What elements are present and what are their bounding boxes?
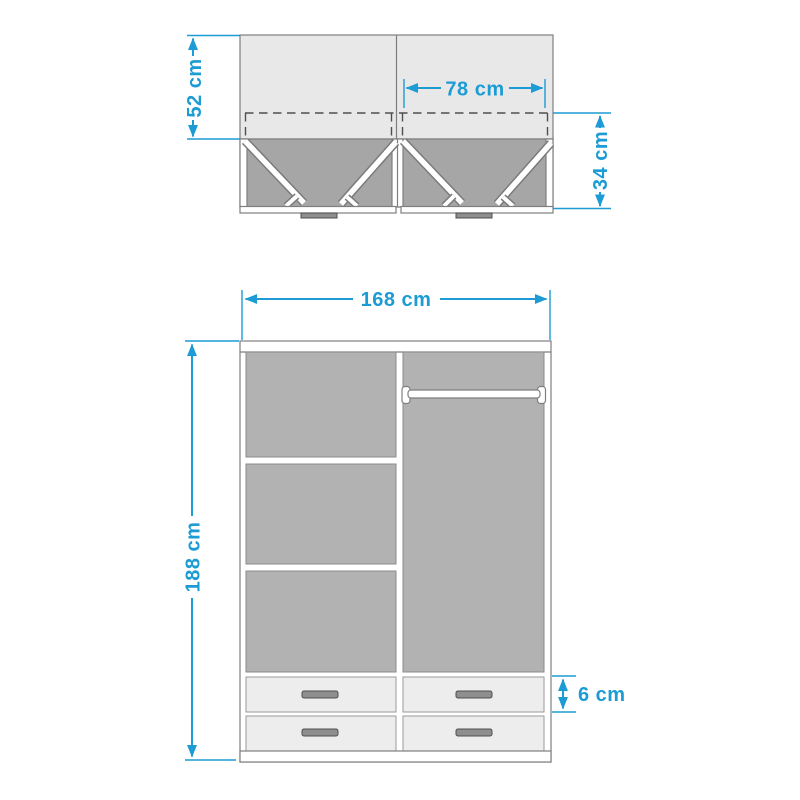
dim-height-188: 188 cm	[183, 341, 240, 760]
hanging-rail-bar	[408, 390, 540, 398]
inner-width-dimension-label: 78 cm	[445, 79, 504, 101]
left-section-panel-1	[246, 352, 396, 457]
width-dimension-label: 168 cm	[361, 289, 432, 311]
base-glide-left	[301, 213, 337, 218]
depth-dimension-label: 52 cm	[184, 58, 206, 117]
door-clearance-dimension-label: 34 cm	[590, 131, 612, 190]
plinth-strip	[240, 751, 551, 762]
top-view: 52 cm 78 cm 34 cm	[184, 35, 612, 218]
dim-depth-52: 52 cm	[184, 36, 240, 140]
left-section-panel-2	[246, 464, 396, 564]
front-edge-strip-left	[240, 207, 396, 214]
drawer-handle-top-left	[302, 691, 338, 698]
front-view: 168 cm 188 cm 6 cm	[183, 289, 626, 762]
base-glide-right	[456, 213, 492, 218]
dim-door-clearance-34: 34 cm	[553, 113, 612, 209]
height-dimension-label: 188 cm	[183, 522, 205, 593]
drawer-handle-bottom-left	[302, 729, 338, 736]
wardrobe-dimension-diagram: 52 cm 78 cm 34 cm	[0, 0, 800, 800]
left-side-wall-top	[240, 139, 247, 207]
dim-width-168: 168 cm	[242, 289, 550, 340]
drawer-handle-bottom-right	[456, 729, 492, 736]
dim-drawer-height-6: 6 cm	[552, 676, 626, 712]
drawer-handle-top-right	[456, 691, 492, 698]
left-section-panel-3	[246, 571, 396, 672]
diagram-canvas: 52 cm 78 cm 34 cm	[0, 0, 800, 800]
front-edge-strip-right	[401, 207, 553, 214]
right-section-panel	[403, 352, 544, 672]
drawer-height-dimension-label: 6 cm	[578, 684, 626, 706]
